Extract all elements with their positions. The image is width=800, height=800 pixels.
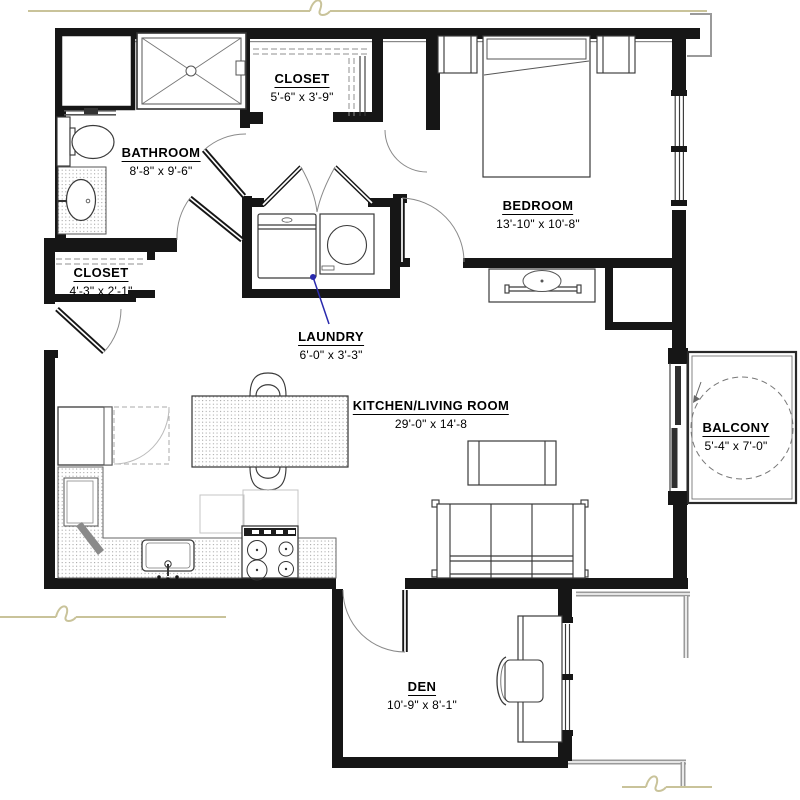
upper-cabinet-outline bbox=[200, 495, 244, 533]
bedroom-door bbox=[402, 198, 464, 262]
room-name: LAUNDRY bbox=[298, 329, 364, 346]
laundry-appliances bbox=[258, 214, 374, 278]
nightstand bbox=[438, 36, 477, 73]
washer bbox=[258, 214, 316, 278]
laundry-bifold-doors bbox=[263, 167, 372, 212]
room-label-balcony: BALCONY 5'-4" x 7'-0" bbox=[702, 419, 769, 453]
toilet bbox=[57, 117, 114, 166]
floor-plan: CLOSET 5'-6" x 3'-9" BATHROOM 8'-8" x 9'… bbox=[0, 0, 800, 800]
sofa bbox=[432, 500, 588, 578]
stove bbox=[242, 526, 298, 580]
room-label-bathroom: BATHROOM 8'-8" x 9'-6" bbox=[122, 144, 201, 178]
room-name: CLOSET bbox=[73, 265, 128, 282]
bathroom-door bbox=[204, 134, 246, 196]
room-dimensions: 29'-0" x 14'-8 bbox=[353, 417, 509, 431]
coffee-table bbox=[468, 441, 556, 485]
room-dimensions: 5'-4" x 7'-0" bbox=[702, 439, 769, 453]
refrigerator bbox=[58, 407, 169, 465]
hall-door bbox=[177, 198, 242, 240]
room-label-laundry: LAUNDRY 6'-0" x 3'-3" bbox=[298, 328, 364, 362]
room-name: BATHROOM bbox=[122, 145, 201, 162]
dryer bbox=[320, 214, 374, 274]
room-dimensions: 6'-0" x 3'-3" bbox=[298, 348, 364, 362]
den-door bbox=[343, 590, 405, 652]
dishwasher bbox=[64, 478, 98, 526]
room-dimensions: 4'-3" x 2'-1" bbox=[69, 284, 132, 298]
kitchen bbox=[58, 373, 348, 581]
dresser bbox=[489, 269, 595, 302]
bathroom-fixtures bbox=[57, 33, 246, 234]
room-label-closet-entry: CLOSET 4'-3" x 2'-1" bbox=[69, 264, 132, 298]
room-name: DEN bbox=[408, 679, 437, 696]
room-dimensions: 8'-8" x 9'-6" bbox=[122, 164, 201, 178]
dining-table bbox=[192, 396, 348, 467]
room-name: BALCONY bbox=[702, 420, 769, 437]
closet-door-swing bbox=[385, 130, 427, 172]
room-label-bedroom: BEDROOM 13'-10" x 10'-8" bbox=[496, 197, 580, 231]
room-dimensions: 10'-9" x 8'-1" bbox=[387, 698, 457, 712]
nightstand bbox=[597, 36, 635, 73]
vanity-sink bbox=[58, 167, 106, 234]
bed bbox=[483, 36, 590, 177]
dining-chair bbox=[250, 467, 286, 490]
room-dimensions: 5'-6" x 3'-9" bbox=[270, 90, 333, 104]
room-label-kitchen-living: KITCHEN/LIVING ROOM 29'-0" x 14'-8 bbox=[353, 397, 509, 431]
shower-door-handle bbox=[236, 61, 245, 75]
room-label-closet-top: CLOSET 5'-6" x 3'-9" bbox=[270, 70, 333, 104]
room-label-den: DEN 10'-9" x 8'-1" bbox=[387, 678, 457, 712]
desk-chair bbox=[497, 657, 543, 705]
room-name: CLOSET bbox=[274, 71, 329, 88]
bedroom-window bbox=[671, 90, 687, 206]
den-furniture bbox=[497, 616, 562, 742]
room-name: BEDROOM bbox=[503, 198, 574, 215]
dining-chair bbox=[250, 373, 286, 396]
entry-door bbox=[57, 309, 121, 352]
living-room-furniture bbox=[432, 441, 588, 578]
room-dimensions: 13'-10" x 10'-8" bbox=[496, 217, 580, 231]
bathroom-storage bbox=[60, 34, 133, 108]
shower bbox=[137, 33, 246, 109]
balcony-sliding-door bbox=[670, 363, 687, 491]
room-name: KITCHEN/LIVING ROOM bbox=[353, 398, 509, 415]
laundry-leader-line bbox=[310, 274, 329, 324]
